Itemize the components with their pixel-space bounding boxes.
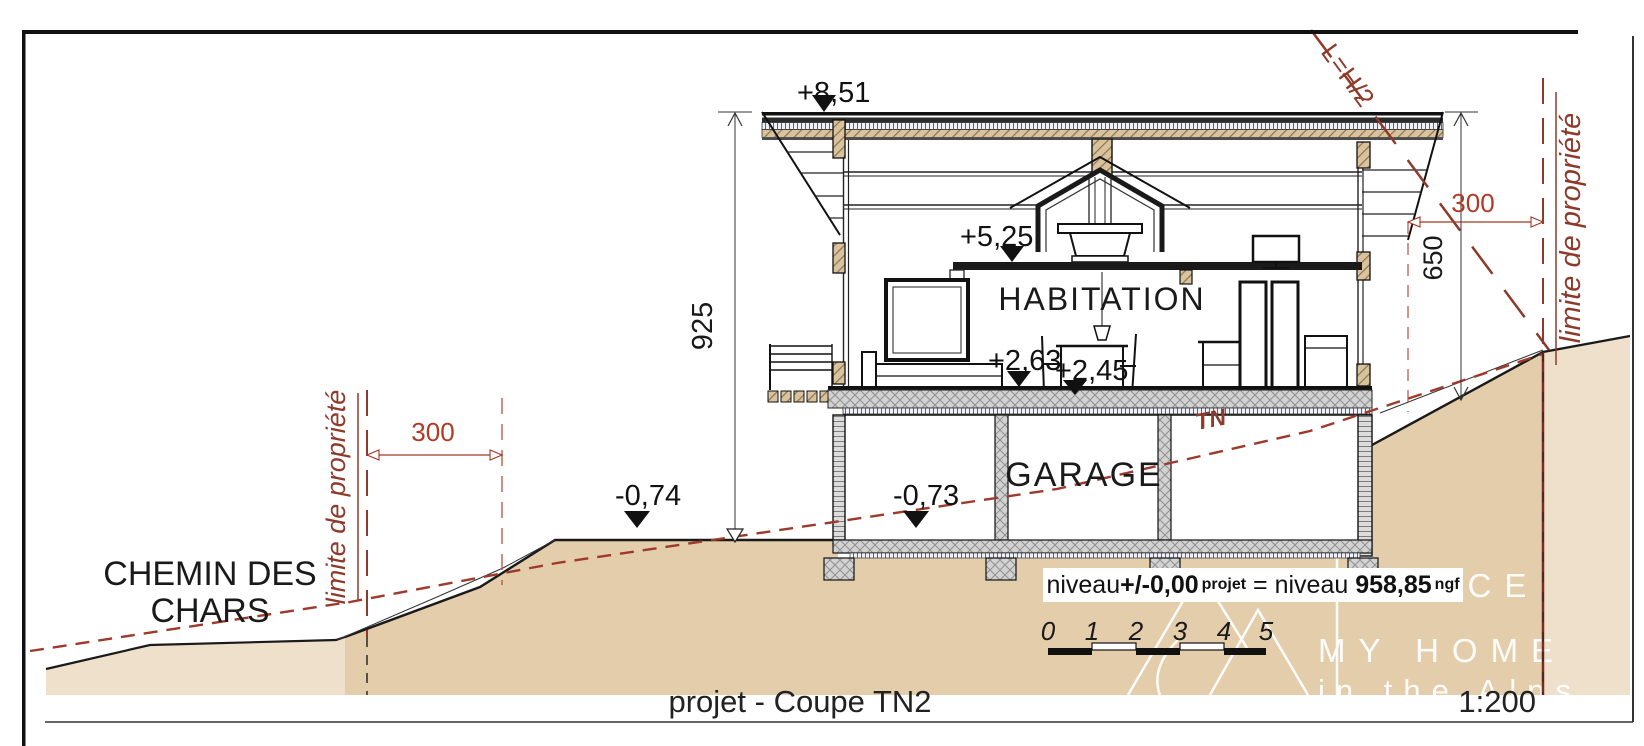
section-drawing-sheet: AGENCE MY HOME in the Alps 0 1 2 3 4 5	[0, 0, 1644, 746]
svg-text:+5,25: +5,25	[960, 221, 1033, 253]
building-section	[762, 112, 1443, 580]
terrain-road-fill	[46, 637, 345, 695]
dim-setback-left-value: 300	[411, 417, 454, 447]
scale-tick-2: 2	[1128, 616, 1144, 646]
garage-right-wall	[1358, 415, 1372, 556]
scale-tick-0: 0	[1041, 616, 1056, 646]
scale-tick-4: 4	[1217, 616, 1231, 646]
section-drawing: AGENCE MY HOME in the Alps 0 1 2 3 4 5	[0, 0, 1644, 746]
sheet-title: projet - Coupe TN2	[560, 684, 1040, 720]
level-note-ngf-value: 958,85	[1355, 571, 1431, 600]
dim-setback-right-value: 300	[1451, 188, 1494, 218]
road-label-line2: CHARS	[150, 592, 269, 630]
scale-tick-3: 3	[1173, 616, 1188, 646]
svg-text:-0,73: -0,73	[893, 480, 959, 512]
tn-label: TN	[1193, 403, 1228, 434]
balcony	[768, 344, 832, 402]
level-note-equals: = niveau	[1246, 571, 1355, 600]
tv	[1253, 236, 1299, 268]
property-limit-right-label: limite de propriété	[1555, 113, 1587, 344]
footing	[986, 558, 1016, 580]
dim-total-height: 925	[687, 112, 752, 542]
level-roof: +8,51	[797, 77, 870, 112]
garage-label: GARAGE	[1005, 456, 1162, 494]
dim-setback-left: 300	[367, 398, 502, 585]
level-ground-court: -0,74	[615, 480, 681, 528]
property-limit-left-label: limite de propriété	[321, 390, 351, 605]
habitation-label: HABITATION	[998, 281, 1205, 317]
garage-floor-slab	[833, 540, 1372, 553]
scale-tick-1: 1	[1085, 616, 1099, 646]
window-frame	[886, 280, 968, 360]
road-label-line1: CHEMIN DES	[103, 555, 316, 593]
svg-text:-0,74: -0,74	[615, 480, 681, 512]
sheet-scale: 1:200	[1458, 684, 1536, 720]
svg-text:+8,51: +8,51	[797, 77, 870, 109]
level-mezzanine: +5,25	[960, 221, 1033, 262]
cabinet	[1305, 336, 1347, 388]
level-note-project-value: +/-0,00	[1120, 571, 1199, 600]
level-note-prefix: niveau	[1046, 571, 1120, 600]
left-wall	[833, 120, 849, 388]
scale-tick-5: 5	[1259, 616, 1274, 646]
dim-right-height: 650	[1418, 112, 1478, 400]
main-floor-slab	[828, 386, 1372, 415]
dim-total-height-value: 925	[687, 302, 719, 350]
glazed-door	[1240, 282, 1298, 388]
level-garage-floor: -0,73	[893, 480, 959, 528]
watermark-line2: MY HOME	[1318, 632, 1566, 669]
height-rule-label: L=H/2	[1315, 38, 1380, 112]
footing	[824, 558, 854, 580]
level-note: niveau +/-0,00projet = niveau 958,85ngf	[1043, 568, 1463, 602]
level-note-ngf-unit: ngf	[1435, 577, 1460, 593]
level-note-project-unit: projet	[1202, 577, 1246, 593]
dim-right-height-value: 650	[1418, 235, 1448, 280]
height-rule-line: L=H/2	[1311, 30, 1549, 350]
